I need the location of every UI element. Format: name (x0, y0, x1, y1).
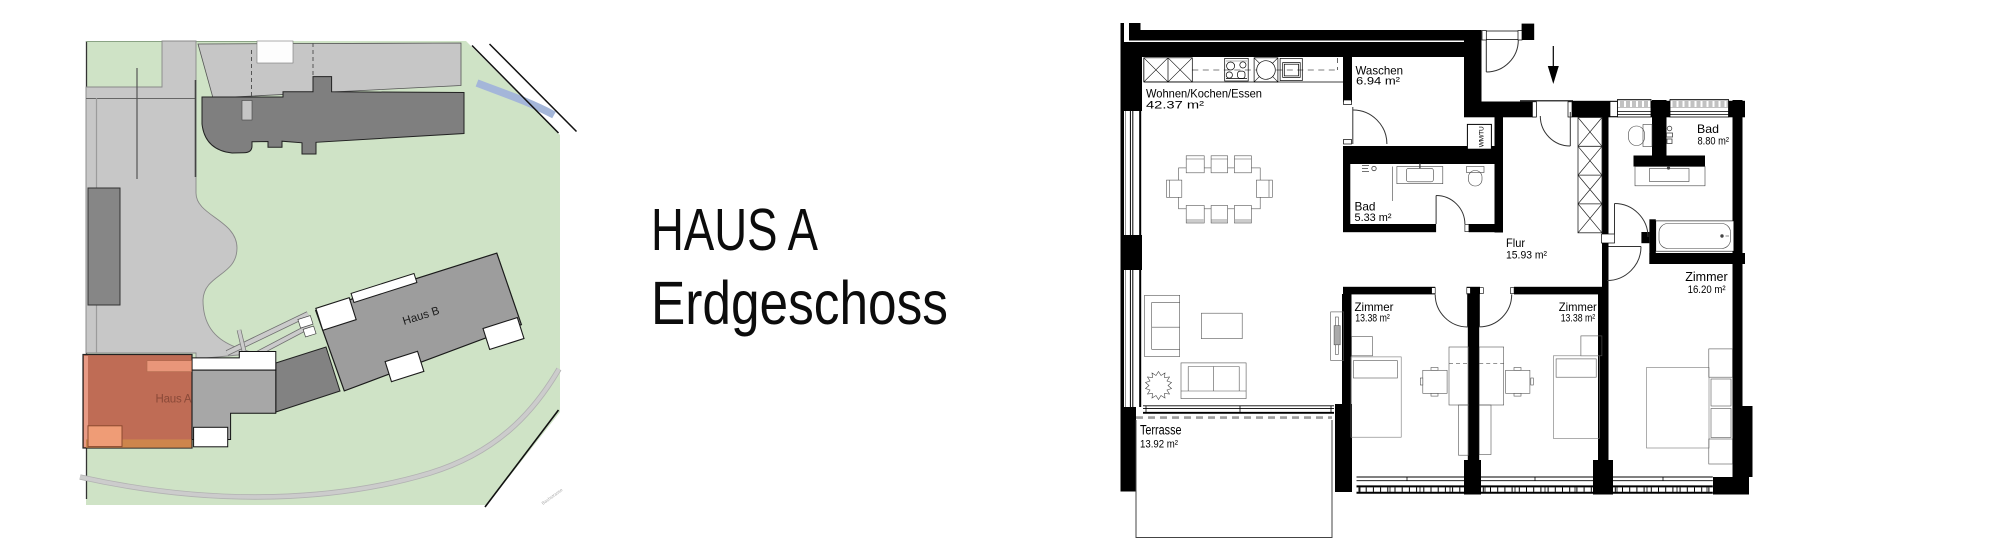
svg-text:6.94 m²: 6.94 m² (1356, 76, 1400, 88)
svg-text:13.38 m²: 13.38 m² (1355, 313, 1390, 325)
svg-text:Erdgeschoss: Erdgeschoss (651, 269, 948, 337)
svg-text:Bad: Bad (1697, 122, 1719, 136)
svg-text:WM/TU: WM/TU (1479, 126, 1486, 147)
svg-text:42.37 m²: 42.37 m² (1146, 100, 1204, 112)
svg-text:Wohnen/Kochen/Essen: Wohnen/Kochen/Essen (1146, 87, 1262, 101)
svg-text:13.92 m²: 13.92 m² (1140, 439, 1178, 451)
svg-text:13.38 m²: 13.38 m² (1561, 313, 1596, 325)
svg-text:8.80 m²: 8.80 m² (1698, 136, 1730, 148)
svg-text:Flur: Flur (1506, 236, 1525, 250)
svg-text:HAUS A: HAUS A (651, 196, 818, 263)
svg-text:Bachstrasse: Bachstrasse (541, 487, 564, 506)
svg-text:Haus A: Haus A (156, 394, 192, 406)
svg-text:16.20 m²: 16.20 m² (1688, 284, 1726, 296)
svg-text:15.93 m²: 15.93 m² (1506, 250, 1547, 262)
svg-text:Zimmer: Zimmer (1685, 270, 1728, 284)
svg-text:5.33 m²: 5.33 m² (1355, 212, 1392, 224)
svg-text:Terrasse: Terrasse (1140, 423, 1182, 438)
